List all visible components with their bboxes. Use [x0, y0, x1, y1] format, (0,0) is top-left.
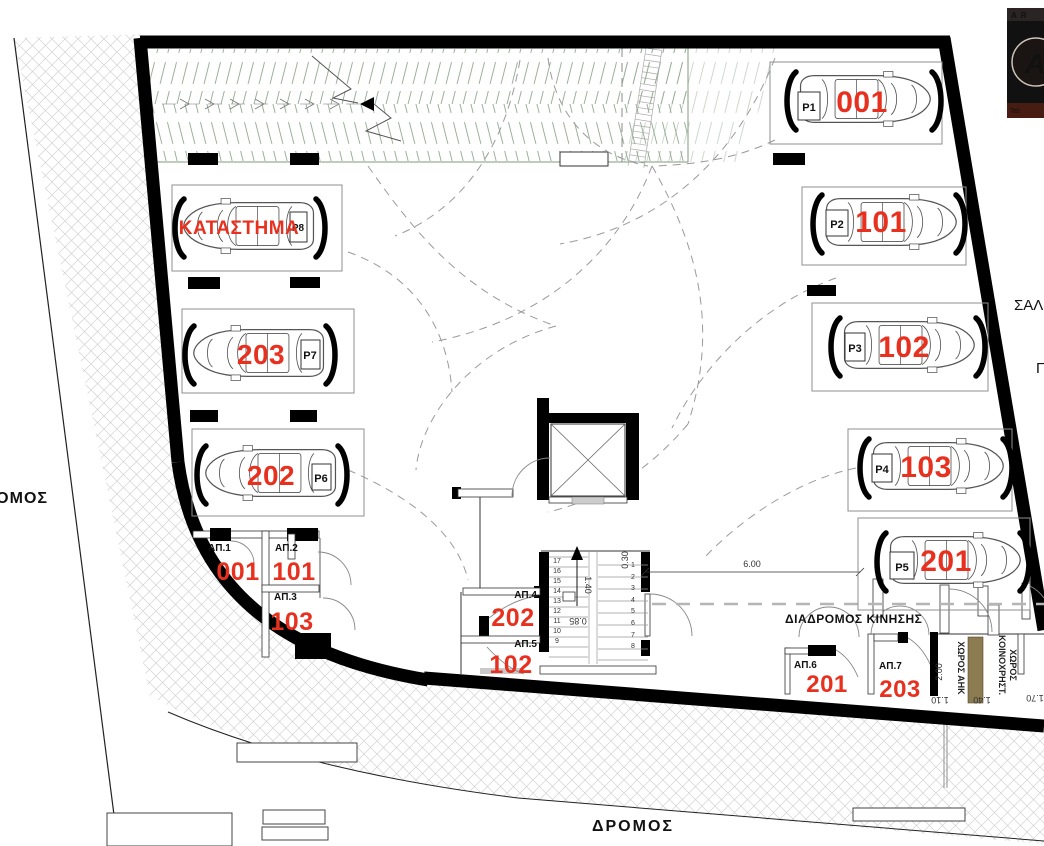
svg-text:6: 6: [631, 620, 635, 627]
floor-plan-canvas: ΔΡΟΜΟΣ ΔΡΟΜΟΣ ΣΑΛ Π: [0, 0, 1044, 846]
storage-room-label: ΑΠ.6: [794, 660, 817, 671]
svg-text:1: 1: [631, 562, 635, 569]
bracket-icon: [956, 195, 965, 253]
door-arc: [318, 552, 351, 585]
road-label-left: ΔΡΟΜΟΣ: [0, 490, 48, 507]
storage-room-label: ΑΠ.2: [275, 543, 298, 554]
bracket-icon: [197, 446, 206, 504]
door-arc: [908, 638, 931, 666]
parking-space-label: P5: [895, 562, 908, 574]
road-label-bottom: ΔΡΟΜΟΣ: [592, 818, 674, 835]
sidewalk-slab: [107, 813, 232, 846]
stair-wall: [641, 640, 650, 656]
unit-number: ΚΑΤΑΣΤΗΜΑ: [179, 218, 300, 239]
bracket-icon: [877, 533, 886, 591]
storage-unit-number: 202: [491, 604, 534, 632]
column-stubs: [188, 153, 836, 422]
bracket-icon: [831, 318, 840, 376]
utility-dim-170: 1.70: [1026, 693, 1044, 703]
utility-dim-110: 1.10: [931, 695, 949, 705]
stair-wall: [539, 552, 549, 652]
logo-tel: Tel:: [1010, 108, 1021, 115]
svg-text:3: 3: [631, 585, 635, 592]
unit-number: 001: [836, 86, 888, 119]
parking-space-p6: P6 202: [192, 429, 364, 516]
parking-space-label: P4: [875, 464, 889, 476]
sidewalk-slab: [237, 743, 357, 762]
bracket-icon: [1003, 439, 1012, 497]
utility-room-label-ahk: ΧΩΡΟΣ ΑΗΚ: [956, 641, 966, 695]
storage-room-label: ΑΠ.5: [514, 639, 537, 650]
door-leaf: [940, 585, 949, 633]
stair-tread-dim: 0.85: [569, 616, 587, 626]
utility-room-label-common-1: ΚΟΙΝΟΧΡΗΣΤ.: [997, 635, 1007, 695]
ramp: [146, 48, 784, 168]
storage-room-label: ΑΠ.7: [879, 661, 902, 672]
svg-text:15: 15: [553, 578, 561, 585]
stair-step-numbers: 1 2 3 4 5 6 7 8 17 16 15 14 13 12 11 10 …: [553, 558, 635, 650]
bracket-icon: [1020, 533, 1029, 591]
svg-text:13: 13: [553, 598, 561, 605]
unit-number: 201: [920, 545, 972, 578]
svg-text:5: 5: [631, 608, 635, 615]
parking-space-p8: P8 ΚΑΤΑΣΤΗΜΑ: [172, 185, 342, 271]
bracket-icon: [813, 195, 822, 253]
storage-room-label: ΑΠ.4: [514, 590, 537, 601]
sidewalk-slab: [263, 810, 325, 824]
svg-text:16: 16: [553, 568, 561, 575]
utility-dim-140: 1.40: [973, 695, 991, 705]
aisle-dimension: 6.00: [743, 559, 761, 569]
bracket-icon: [185, 326, 194, 384]
storage-block-3: ΑΠ.6 201 ΑΠ.7 203 ΧΩΡΟΣ ΑΗΚ 2.00 ΚΟΙΝΟΧΡ…: [785, 579, 1044, 705]
parking-space-label: P6: [314, 473, 327, 485]
stair-door-leaf: [645, 594, 650, 636]
svg-text:17: 17: [553, 558, 561, 565]
street-label-right-2: Π: [1036, 360, 1044, 377]
storage-room-label: ΑΠ.3: [274, 592, 297, 603]
ramp-upper-hatch: [624, 48, 784, 162]
unit-number: 103: [900, 451, 952, 484]
unit-number: 202: [247, 460, 295, 491]
utility-room-label-common-2: ΧΩΡΟΣ: [1008, 649, 1018, 681]
floor-plan-svg: ΔΡΟΜΟΣ ΔΡΟΜΟΣ ΣΑΛ Π: [0, 0, 1044, 846]
bracket-icon: [860, 439, 869, 497]
storage-unit-number: 101: [272, 558, 315, 586]
storage-unit-number: 203: [879, 676, 921, 703]
parking-space-p4: P4 103: [848, 429, 1012, 511]
logo-letter: A: [1024, 48, 1044, 79]
street-label-right: ΣΑΛ: [1014, 297, 1043, 314]
sidewalk-slab: [853, 808, 965, 821]
door-arc: [323, 598, 355, 630]
bracket-icon: [787, 72, 796, 130]
bracket-icon: [976, 318, 985, 376]
logo: AR A Tel:: [1007, 8, 1044, 118]
sidewalk-slab: [262, 827, 328, 840]
parking-space-p7: P7 203: [182, 309, 354, 393]
utility-dim-200: 2.00: [934, 663, 944, 681]
storage-room-label: ΑΠ.1: [208, 543, 231, 554]
storage-block-2: ΑΠ.4 202 ΑΠ.5 102: [461, 588, 540, 679]
storage-unit-number: 001: [216, 558, 259, 586]
unit-number: 101: [855, 206, 907, 239]
storage-unit-number: 201: [806, 671, 848, 698]
parking-space-p1: P1 001: [770, 62, 942, 144]
stair-width-dim: 1.40: [583, 576, 593, 594]
unit-number: 203: [237, 339, 285, 370]
stair-treads-right: [598, 565, 648, 660]
svg-text:2: 2: [631, 574, 635, 581]
logo-header: AR: [1011, 11, 1031, 20]
svg-text:4: 4: [631, 597, 635, 604]
bracket-icon: [326, 326, 335, 384]
stair-divider: [589, 552, 597, 664]
stair-door-arc: [650, 594, 692, 636]
ramp-kerb: [560, 152, 608, 166]
unit-number: 102: [878, 331, 930, 364]
parking-space-p2: P2 101: [802, 187, 966, 265]
svg-text:7: 7: [631, 632, 635, 639]
storage-unit-number: 102: [489, 651, 532, 679]
parking-space-label: P3: [848, 343, 861, 355]
storage-unit-number: 103: [270, 608, 313, 636]
corridor-label: ΔΙΑΔΡΟΜΟΣ ΚΙΝΗΣΗΣ: [785, 612, 922, 626]
svg-text:14: 14: [553, 588, 561, 595]
elevator-wall: [626, 413, 639, 500]
parking-space-p3: P3 102: [812, 303, 988, 391]
bracket-icon: [932, 72, 941, 130]
svg-text:10: 10: [553, 628, 561, 635]
svg-text:11: 11: [553, 618, 560, 625]
svg-text:8: 8: [631, 643, 635, 650]
stair-030-dim: 0.30: [620, 551, 630, 569]
parking-space-label: P7: [303, 350, 316, 362]
utility-shaft: [968, 637, 983, 703]
parking-space-label: P1: [802, 102, 815, 114]
svg-text:12: 12: [553, 608, 561, 615]
svg-text:9: 9: [555, 638, 559, 645]
elevator-wall: [537, 413, 629, 423]
parking-space-label: P2: [830, 219, 843, 231]
bracket-icon: [316, 199, 325, 257]
stair-up-arrow-icon: [571, 546, 583, 560]
elevator-door: [572, 497, 604, 504]
bracket-icon: [338, 446, 347, 504]
